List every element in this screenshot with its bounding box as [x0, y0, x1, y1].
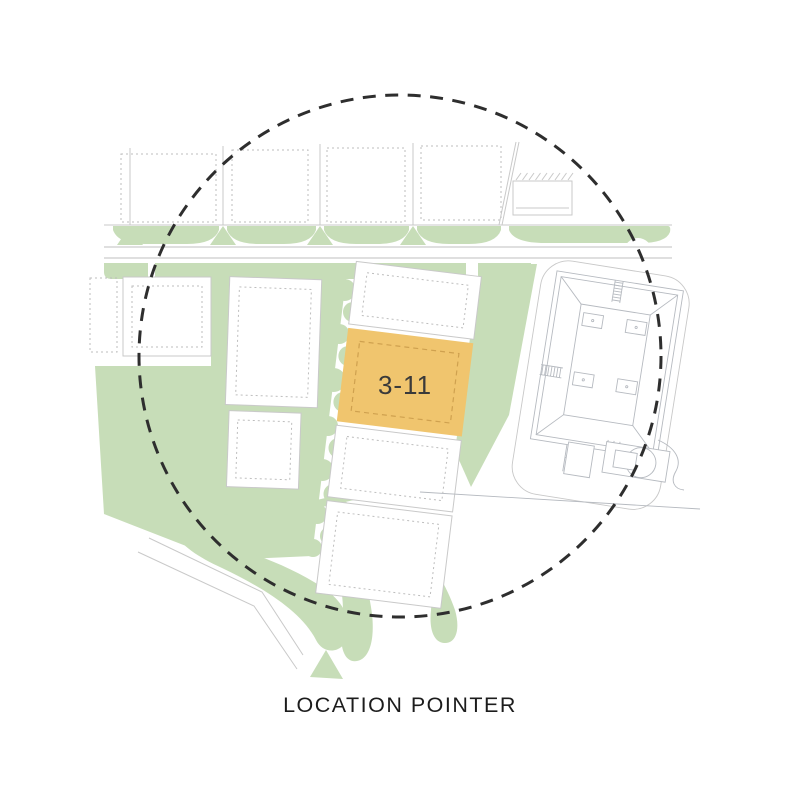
plot	[327, 425, 461, 512]
median-triangle	[310, 650, 343, 679]
verge-arc	[227, 226, 316, 244]
plot	[225, 277, 321, 408]
plot-outline-dotted	[327, 148, 405, 222]
plot	[123, 277, 211, 356]
site-map-canvas: 3-11	[0, 0, 800, 800]
plot-outline-dotted	[232, 150, 308, 222]
annex-notch	[613, 450, 637, 470]
plot-dividers	[104, 142, 672, 225]
location-pointer-map: 3-11	[0, 0, 800, 800]
verge-arc	[509, 226, 670, 243]
plot	[316, 501, 452, 609]
tree-blob	[304, 539, 322, 557]
map-caption: LOCATION POINTER	[283, 693, 517, 717]
verge-arc	[324, 226, 409, 244]
hatch-ticks	[516, 173, 573, 180]
plot-outline-dotted	[421, 146, 501, 220]
plot-outline-dotted	[90, 278, 117, 352]
annex-square	[564, 442, 595, 478]
plot-outline-dotted	[121, 154, 216, 222]
highlighted-plot-label: 3-11	[378, 370, 432, 400]
small-building	[513, 181, 572, 215]
verge-arc	[417, 226, 501, 244]
road	[104, 247, 672, 258]
plots-upper-row	[104, 142, 672, 225]
tree-blob	[329, 324, 349, 344]
